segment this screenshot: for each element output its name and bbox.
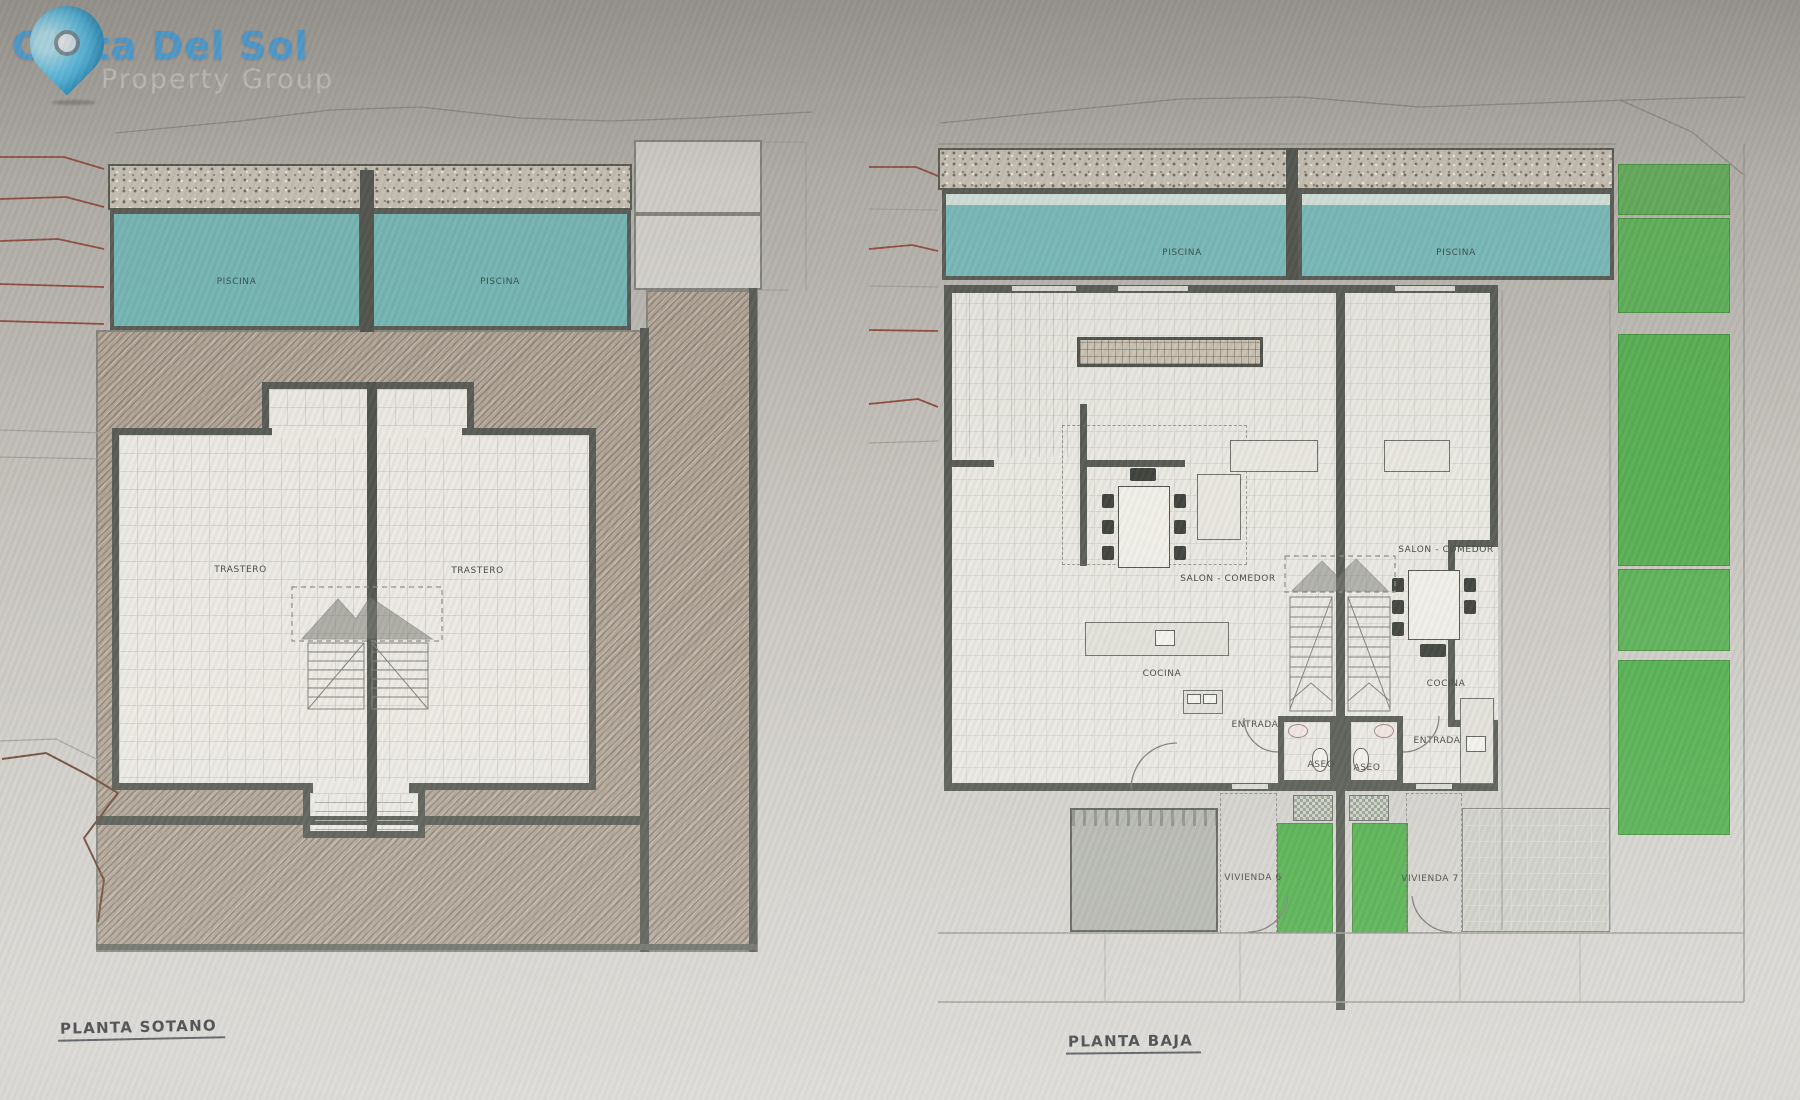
- entry-mat: [1349, 795, 1389, 821]
- pool-divider-wall: [360, 170, 374, 332]
- window: [1118, 286, 1188, 291]
- chair: [1102, 494, 1114, 508]
- logo: Costa Del Sol Property Group: [0, 0, 360, 120]
- room-label: COCINA: [1398, 679, 1494, 689]
- room-label: TRASTERO: [405, 566, 550, 576]
- terrace-decking: [955, 292, 1075, 457]
- unit-label: VIVIENDA 7: [1380, 874, 1480, 884]
- garage-stripes: [1072, 810, 1216, 826]
- chair: [1174, 546, 1186, 560]
- sink-basin-icon: [1374, 724, 1394, 738]
- lawn: [1618, 334, 1730, 566]
- wall: [950, 460, 994, 467]
- wall: [96, 944, 757, 950]
- room-label: ENTRADA: [1210, 720, 1300, 730]
- room-label: COCINA: [1112, 669, 1212, 679]
- wall-merge-patch: [313, 781, 409, 793]
- entry-mat: [1293, 795, 1333, 821]
- chair: [1174, 494, 1186, 508]
- pool-label: PISCINA: [946, 248, 1286, 258]
- stairs-icon: [290, 585, 446, 715]
- wall: [640, 328, 649, 952]
- stair-treads: [315, 794, 413, 830]
- driveway: [1070, 808, 1218, 932]
- pool-label: PISCINA: [114, 277, 359, 287]
- chair: [1464, 600, 1476, 614]
- room-label: SALON - COMEDOR: [1140, 574, 1316, 584]
- pool-label: PISCINA: [1302, 248, 1610, 258]
- pool-label: PISCINA: [373, 277, 627, 287]
- entry-door: [1232, 784, 1268, 789]
- entry-walk: [1406, 793, 1462, 933]
- window: [1395, 286, 1455, 291]
- pool-divider-wall: [1286, 148, 1298, 280]
- plan-title-baja: PLANTA BAJA: [1066, 1031, 1201, 1054]
- sofa: [1384, 440, 1450, 472]
- chair: [1102, 546, 1114, 560]
- pool-right: PISCINA: [1298, 190, 1614, 280]
- wall: [1490, 285, 1498, 547]
- room-label: ENTRADA: [1392, 736, 1482, 746]
- terrace-planter: [1077, 337, 1263, 367]
- chair: [1174, 520, 1186, 534]
- pin-shadow: [52, 100, 96, 105]
- entry-door: [1416, 784, 1452, 789]
- gravel-strip: [938, 148, 1614, 190]
- sofa: [1230, 440, 1318, 472]
- lawn: [1618, 218, 1730, 313]
- pool-right: PISCINA: [369, 210, 631, 330]
- wall: [944, 285, 952, 790]
- plan-title-sotano: PLANTA SOTANO: [58, 1016, 225, 1041]
- lawn: [1618, 660, 1730, 835]
- room-label: TRASTERO: [168, 565, 313, 575]
- sink: [1155, 630, 1175, 646]
- ground-hatch-right: [646, 290, 758, 952]
- room-label: SALON - COMEDOR: [1358, 545, 1534, 555]
- wall: [749, 288, 757, 952]
- lawn: [1618, 164, 1730, 215]
- lawn: [1618, 569, 1730, 651]
- chair: [1130, 468, 1156, 481]
- side-pad: [1462, 808, 1610, 932]
- sink: [1187, 694, 1201, 704]
- entry-walk: [1220, 793, 1277, 933]
- dining-table: [1408, 570, 1460, 640]
- pool-left: PISCINA: [110, 210, 363, 330]
- room-label: ASEO: [1330, 763, 1404, 773]
- chair: [1420, 644, 1446, 657]
- dining-table: [1118, 486, 1170, 568]
- sofa: [1197, 474, 1241, 540]
- pool-left: PISCINA: [942, 190, 1290, 280]
- sink: [1203, 694, 1217, 704]
- blueprint-photo: Costa Del Sol Property Group PISCINA PIS…: [0, 0, 1800, 1100]
- survey-box: [634, 140, 762, 214]
- window: [1012, 286, 1076, 291]
- wall: [944, 783, 1498, 791]
- unit-label: VIVIENDA 6: [1203, 873, 1303, 883]
- logo-tagline-text: Property Group: [101, 64, 334, 95]
- chair: [1464, 578, 1476, 592]
- chair: [1102, 520, 1114, 534]
- survey-box: [634, 214, 762, 290]
